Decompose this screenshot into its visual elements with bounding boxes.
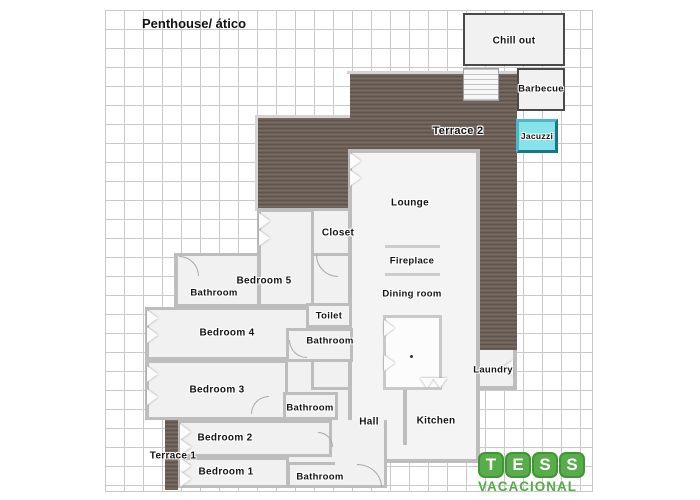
fireplace-bar-bottom <box>385 273 440 276</box>
jacuzzi-label: Jacuzzi <box>521 131 553 141</box>
bedroom1-door-icon <box>180 471 191 487</box>
bedroom3-window-icon <box>147 366 158 382</box>
bedroom5-label: Bedroom 5 <box>237 276 292 287</box>
table-corner-icon <box>433 378 447 388</box>
table-dot <box>410 355 413 358</box>
barbecue-label: Barbecue <box>518 84 564 95</box>
bedroom5-window-icon <box>259 213 270 229</box>
stairs <box>463 68 499 101</box>
logo-letter-s2: S <box>559 452 585 478</box>
lounge-door-icon <box>350 170 361 186</box>
logo-letter-t: T <box>478 452 504 478</box>
closet-label: Closet <box>322 228 354 239</box>
terrace2-label: Terrace 2 <box>433 125 484 137</box>
bedroom3-label: Bedroom 3 <box>190 385 245 396</box>
dining-room-label: Dining room <box>382 289 441 300</box>
bathroom-hall-label: Bathroom <box>286 403 333 414</box>
terrace2-wall-left <box>255 115 258 211</box>
table-corner-icon <box>420 378 434 388</box>
logo-letter-e: E <box>505 452 531 478</box>
toilet-label: Toilet <box>316 311 342 322</box>
bedroom1-label: Bedroom 1 <box>199 467 254 478</box>
bedroom4-window-icon <box>147 327 158 343</box>
fireplace-bar-top <box>385 245 440 248</box>
bedroom2-label: Bedroom 2 <box>198 433 253 444</box>
logo-word: VACACIONAL <box>478 479 585 494</box>
laundry-label: Laundry <box>473 365 513 376</box>
table-window-icon <box>384 320 395 336</box>
hall-label: Hall <box>359 417 379 428</box>
terrace2-deck-side <box>480 118 517 350</box>
logo-letter-s1: S <box>532 452 558 478</box>
terrace2-wall-step <box>255 115 350 118</box>
tess-vacacional-logo: T E S S VACACIONAL <box>478 452 585 494</box>
bathroom-bottom-label: Bathroom <box>296 472 343 483</box>
floor-plan: Penthouse/ ático <box>0 0 700 500</box>
logo-letter-boxes: T E S S <box>478 452 585 478</box>
terrace1-label: Terrace 1 <box>150 451 196 462</box>
plan-title: Penthouse/ ático <box>142 16 246 31</box>
bedroom4-label: Bedroom 4 <box>200 328 255 339</box>
bedroom2-door-icon <box>180 424 191 440</box>
fireplace-label: Fireplace <box>390 256 434 267</box>
bedroom4-window-icon <box>147 310 158 326</box>
bedroom5-window-icon <box>259 230 270 246</box>
bedroom3-window-icon <box>147 389 158 405</box>
table-window-icon <box>384 355 395 371</box>
chill-out-label: Chill out <box>493 36 536 47</box>
lounge-door-icon <box>350 153 361 169</box>
bathroom-mid-label: Bathroom <box>306 336 353 347</box>
kitchen-hall-wall <box>403 390 407 445</box>
bathroom5-label: Bathroom <box>190 288 237 299</box>
kitchen-label: Kitchen <box>417 416 456 427</box>
lounge-label: Lounge <box>391 198 429 209</box>
